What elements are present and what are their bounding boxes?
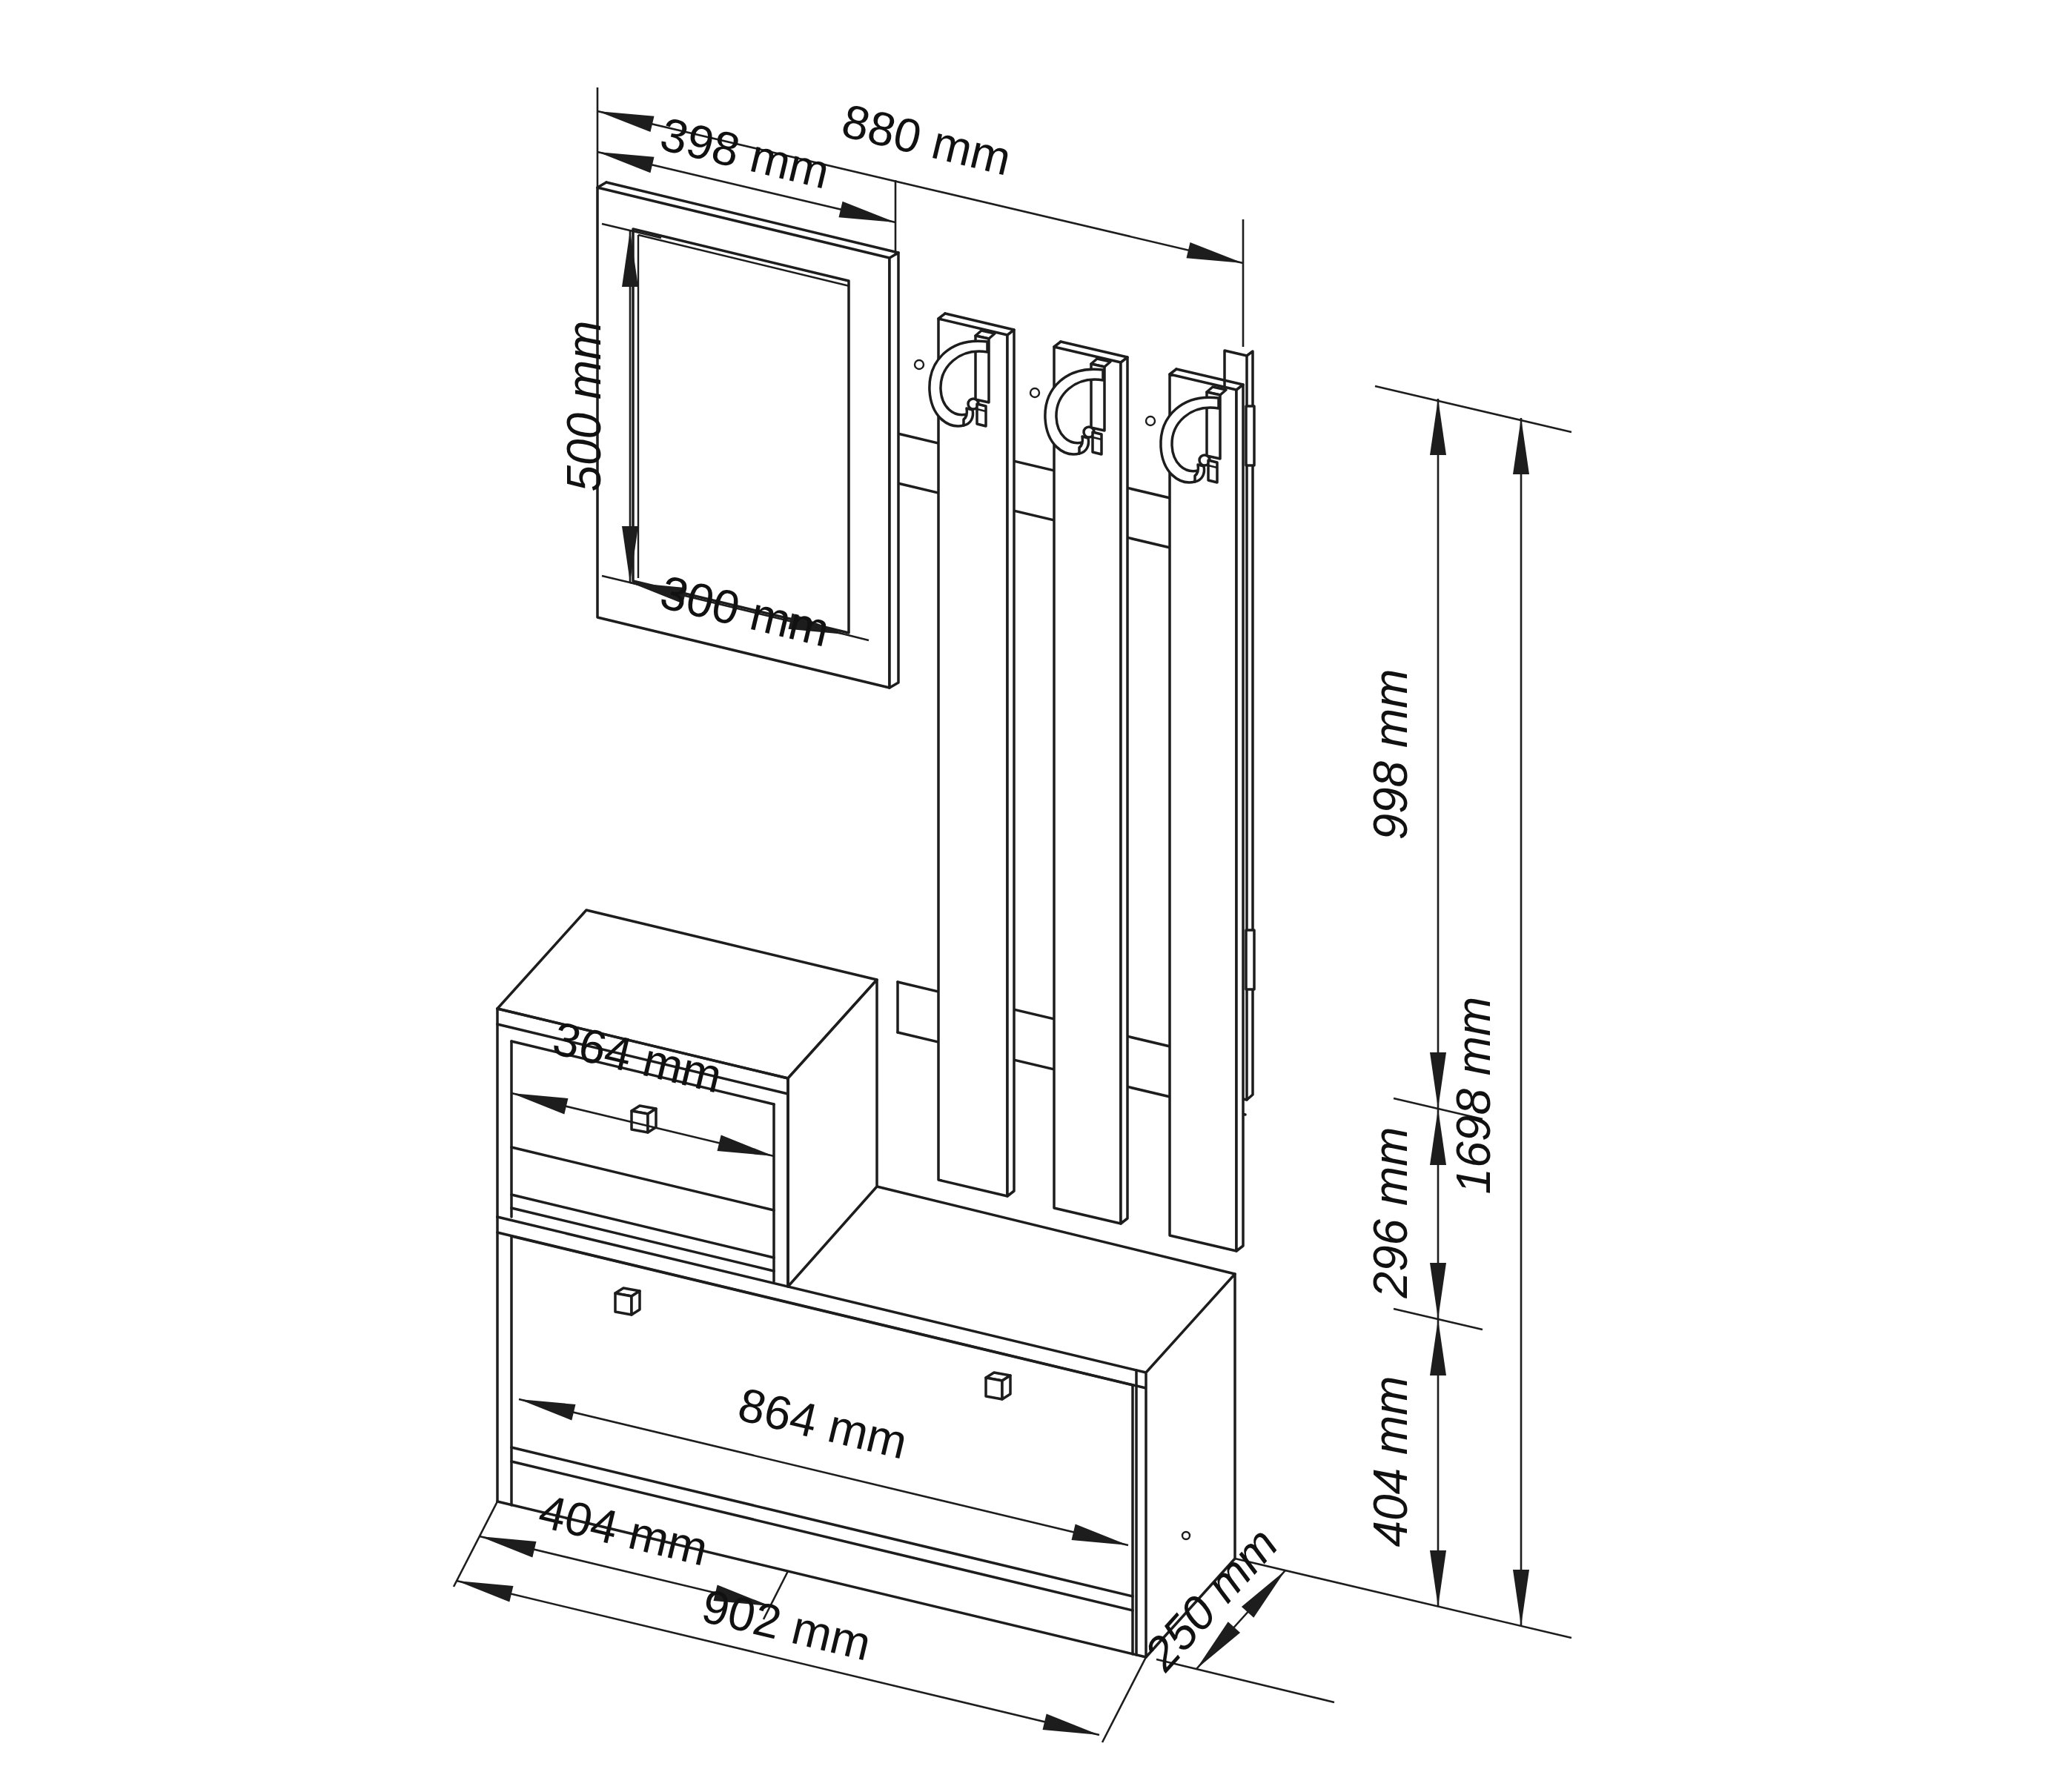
label-wall-panel-height: 998 mm	[1364, 668, 1417, 840]
label-total-width: 880 mm	[837, 94, 1016, 186]
rack-slat	[938, 313, 1014, 1196]
technical-drawing-page: 398 mm 880 mm 500 mm 300 mm 364 mm 864 m…	[0, 0, 2057, 1792]
label-flap-front-width: 864 mm	[733, 1378, 912, 1470]
coat-rack-panel	[898, 313, 1254, 1251]
screw-hole-icon	[1146, 417, 1155, 425]
label-mirror-glass-height: 500 mm	[557, 320, 611, 491]
mirror-glass	[633, 229, 849, 633]
dim-drawer-front-width	[511, 1093, 774, 1156]
label-total-height: 1698 mm	[1447, 997, 1500, 1195]
screw-hole-icon	[1030, 388, 1039, 397]
label-drawer-cabinet-width: 404 mm	[534, 1484, 713, 1576]
rack-slat	[1170, 369, 1243, 1251]
label-bench-height: 404 mm	[1364, 1375, 1417, 1547]
wall-bracket-icon	[1246, 406, 1254, 465]
rack-slat	[1054, 342, 1127, 1224]
open-shelf	[511, 1195, 774, 1271]
label-mirror-frame-width: 398 mm	[655, 107, 835, 199]
screw-hole-icon	[915, 360, 924, 369]
label-drawer-cabinet-height: 296 mm	[1364, 1126, 1417, 1298]
label-bench-width: 902 mm	[697, 1579, 876, 1671]
furniture-dimension-diagram: 398 mm 880 mm 500 mm 300 mm 364 mm 864 m…	[0, 0, 2057, 1792]
wall-bracket-icon	[1246, 930, 1254, 989]
